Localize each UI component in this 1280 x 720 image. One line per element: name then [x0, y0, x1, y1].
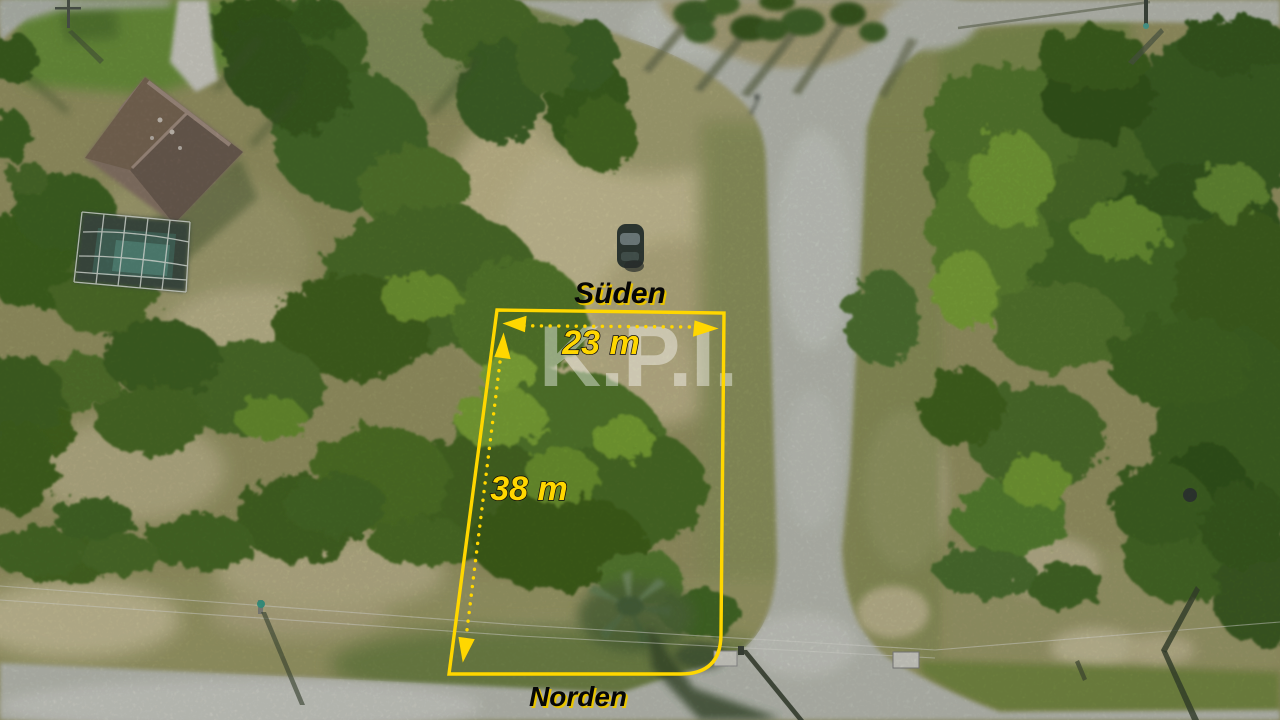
- svg-text:38 m: 38 m: [490, 470, 568, 508]
- svg-text:Süden: Süden: [574, 277, 666, 310]
- svg-text:23 m: 23 m: [561, 324, 640, 362]
- svg-text:Norden: Norden: [529, 681, 627, 712]
